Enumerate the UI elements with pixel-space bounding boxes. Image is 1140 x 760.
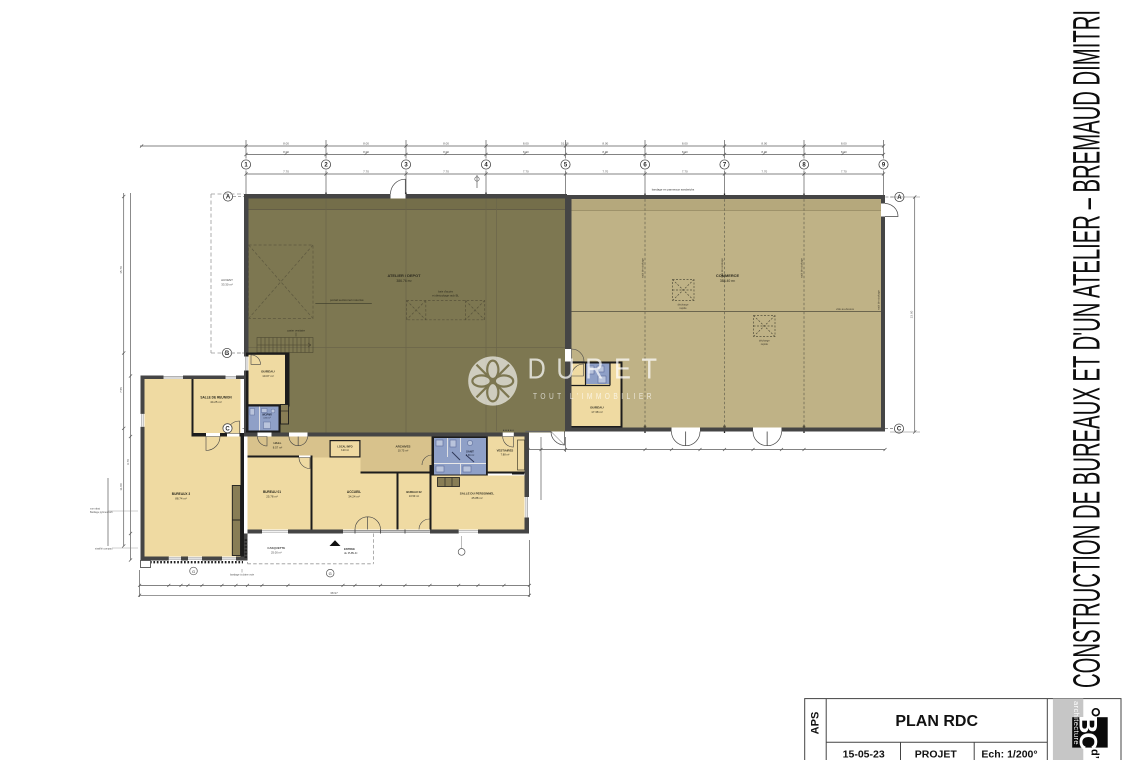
svg-text:rack de stockage: rack de stockage	[641, 258, 645, 278]
svg-text:ENTREE: ENTREE	[344, 547, 355, 551]
svg-text:casier vestiaire: casier vestiaire	[287, 329, 305, 333]
svg-text:38.97: 38.97	[330, 591, 338, 595]
svg-text:G: G	[192, 569, 195, 574]
svg-text:ARCHIVES: ARCHIVES	[396, 445, 411, 449]
svg-text:d’: d’	[1088, 749, 1100, 759]
svg-text:388.40 m²: 388.40 m²	[720, 279, 736, 283]
svg-text:11.80: 11.80	[119, 483, 123, 491]
svg-text:rack de stockage: rack de stockage	[877, 290, 881, 310]
svg-text:bardage en panneaux sandwichs: bardage en panneaux sandwichs	[652, 188, 695, 192]
svg-text:BUREAUX 3: BUREAUX 3	[172, 492, 191, 496]
svg-text:34.24 m²: 34.24 m²	[348, 495, 359, 499]
svg-text:8.00: 8.00	[841, 142, 847, 146]
svg-text:15-05-23: 15-05-23	[843, 749, 885, 760]
svg-text:DURET: DURET	[528, 354, 668, 386]
svg-text:décharge: décharge	[678, 303, 689, 307]
svg-text:8.00: 8.00	[682, 150, 688, 154]
svg-text:8.57 m²: 8.57 m²	[273, 445, 283, 449]
svg-text:10.75 m²: 10.75 m²	[398, 449, 409, 453]
svg-text:7.70: 7.70	[682, 170, 688, 174]
svg-text:10.59 m²: 10.59 m²	[409, 494, 419, 498]
svg-text:stratifié compact: stratifié compact	[95, 548, 113, 551]
svg-text:VESTIAIRES: VESTIAIRES	[497, 449, 514, 453]
svg-text:7.88 m²: 7.88 m²	[501, 453, 510, 457]
svg-text:AUVENT: AUVENT	[221, 278, 233, 282]
svg-text:25.88 m²: 25.88 m²	[471, 496, 482, 500]
svg-text:7.70: 7.70	[443, 170, 449, 174]
svg-text:33.30 m²: 33.30 m²	[221, 283, 232, 287]
svg-text:SALLE DU PERSONNEL: SALLE DU PERSONNEL	[460, 492, 495, 496]
svg-text:8.00: 8.00	[523, 142, 529, 146]
svg-text:8.00: 8.00	[363, 142, 369, 146]
svg-text:BUREAU 02: BUREAU 02	[406, 490, 422, 494]
svg-text:25.00 m²: 25.00 m²	[271, 550, 282, 554]
svg-text:du PUBLIC: du PUBLIC	[344, 551, 358, 555]
svg-text:portail sectionnel motorisé: portail sectionnel motorisé	[330, 298, 364, 302]
svg-text:4.66 m²: 4.66 m²	[263, 417, 271, 420]
svg-text:rapide: rapide	[679, 306, 687, 310]
svg-text:CONSTRUCTION DE BUREAUX ET D'U: CONSTRUCTION DE BUREAUX ET D'UN ATELIER …	[1067, 10, 1109, 688]
svg-text:SANIT: SANIT	[466, 450, 474, 454]
svg-text:B: B	[225, 351, 230, 357]
svg-text:51.08: 51.08	[561, 142, 569, 146]
svg-text:44.25 m²: 44.25 m²	[210, 400, 221, 404]
svg-text:8.00: 8.00	[682, 142, 688, 146]
svg-text:7.70: 7.70	[841, 170, 847, 174]
svg-text:8.00: 8.00	[443, 142, 449, 146]
svg-text:BC: BC	[1074, 715, 1102, 750]
svg-text:7.70: 7.70	[523, 170, 529, 174]
svg-text:A: A	[226, 195, 231, 201]
svg-text:8.00: 8.00	[443, 150, 449, 154]
svg-text:ATELIER / DEPOT: ATELIER / DEPOT	[388, 273, 422, 278]
svg-text:BUREAU: BUREAU	[590, 406, 604, 410]
svg-text:88.74 m²: 88.74 m²	[175, 497, 186, 501]
svg-text:8.00: 8.00	[761, 150, 767, 154]
svg-text:23.60: 23.60	[910, 310, 914, 318]
svg-text:10.07 m²: 10.07 m²	[262, 374, 273, 378]
svg-text:SALLE DE REUNION: SALLE DE REUNION	[200, 396, 232, 400]
svg-text:25.78 m²: 25.78 m²	[266, 495, 277, 499]
svg-text:baie d'accès: baie d'accès	[438, 290, 454, 294]
svg-text:8.00: 8.00	[602, 142, 608, 146]
svg-text:Bardage pylones turb: Bardage pylones turb	[90, 511, 113, 514]
svg-text:7.70: 7.70	[283, 170, 289, 174]
svg-text:TOUT L'IMMOBILIER: TOUT L'IMMOBILIER	[533, 392, 655, 401]
svg-text:3.20 m²: 3.20 m²	[341, 449, 349, 452]
svg-text:386.76 m²: 386.76 m²	[396, 279, 412, 283]
svg-text:COMMERCE: COMMERCE	[716, 273, 740, 278]
svg-text:17.38 m²: 17.38 m²	[591, 410, 602, 414]
svg-text:rapide: rapide	[761, 342, 769, 346]
svg-text:8.00: 8.00	[523, 150, 529, 154]
svg-text:8.00: 8.00	[761, 142, 767, 146]
svg-text:8.00: 8.00	[283, 150, 289, 154]
svg-text:WC/PMR: WC/PMR	[262, 415, 272, 417]
svg-text:ACCUEIL: ACCUEIL	[347, 490, 361, 494]
svg-text:vide au-dessus: vide au-dessus	[836, 307, 855, 311]
svg-text:8.00: 8.00	[841, 150, 847, 154]
svg-text:15.70: 15.70	[119, 266, 123, 274]
svg-text:CASQUETTE: CASQUETTE	[267, 546, 285, 550]
svg-text:5.66 m²: 5.66 m²	[466, 454, 475, 457]
svg-text:bardage à claire voie: bardage à claire voie	[230, 573, 255, 577]
svg-text:rack de stockage: rack de stockage	[800, 258, 804, 278]
svg-text:7.55: 7.55	[119, 387, 123, 393]
svg-text:C: C	[225, 426, 230, 432]
svg-text:8.00: 8.00	[363, 150, 369, 154]
svg-text:décharge: décharge	[759, 339, 770, 343]
svg-text:7.70: 7.70	[363, 170, 369, 174]
svg-text:7.70: 7.70	[602, 170, 608, 174]
svg-text:8.00: 8.00	[283, 142, 289, 146]
svg-text:9.70: 9.70	[126, 459, 130, 465]
svg-text:PLAN RDC: PLAN RDC	[895, 713, 978, 730]
svg-text:G: G	[329, 571, 332, 576]
svg-text:BUREAU 01: BUREAU 01	[263, 490, 281, 494]
svg-text:Ech: 1/200°: Ech: 1/200°	[981, 749, 1037, 760]
svg-text:7.70: 7.70	[761, 170, 767, 174]
svg-text:APS: APS	[810, 712, 822, 735]
svg-text:A: A	[897, 195, 902, 201]
svg-text:et déstockage rack BL: et déstockage rack BL	[432, 293, 459, 297]
svg-text:8.00: 8.00	[602, 150, 608, 154]
svg-text:PROJET: PROJET	[915, 749, 958, 760]
